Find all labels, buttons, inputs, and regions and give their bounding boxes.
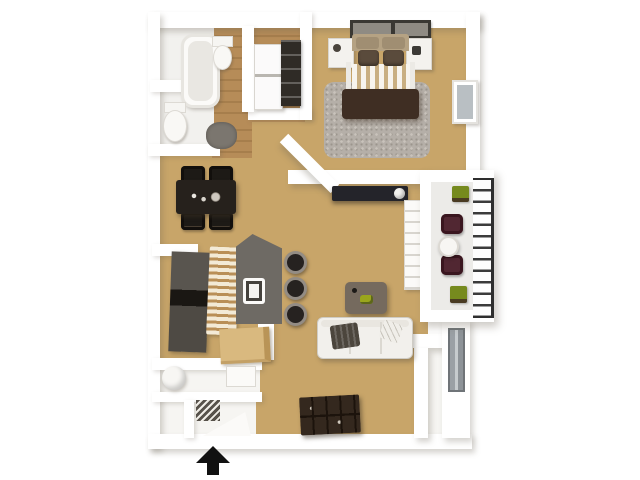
bar-stool [284, 277, 307, 300]
bar-stool [284, 251, 307, 274]
dining-chair [181, 212, 205, 230]
patio-slider-door [448, 328, 465, 392]
bed-pillow-left [358, 50, 379, 66]
bed-blanket [342, 89, 419, 119]
console-lamp [394, 188, 405, 199]
closet-shelving [281, 40, 301, 106]
table-setting [182, 186, 230, 208]
balcony-table [438, 236, 459, 257]
balcony-chair [441, 255, 463, 275]
wall-segment-step-vertical [414, 348, 428, 438]
sofa-throw [329, 322, 360, 350]
wall-segment-bath-bottom [148, 144, 220, 156]
slatted-cabinet [206, 246, 240, 335]
kitchen-sink [243, 278, 265, 304]
wall-segment-closet-right [300, 12, 312, 120]
nightstand-decor-right [412, 46, 421, 55]
wall-segment-left [148, 12, 160, 448]
washer-dryer-seam [255, 74, 282, 77]
dining-chair [209, 212, 233, 230]
headboard-cushion-right [382, 37, 405, 49]
entry-shelf [196, 400, 220, 421]
balcony-chair [441, 214, 463, 234]
water-heater [162, 366, 186, 390]
media-cabinet [299, 394, 361, 435]
pedestal-sink [163, 110, 187, 142]
bathtub-basin [188, 41, 213, 101]
washer-dryer-stack [254, 44, 283, 110]
coffee-table-tray [360, 295, 373, 304]
entry-arrow-icon [196, 446, 230, 463]
balcony-planter [452, 186, 469, 202]
bedroom-window [452, 80, 478, 124]
entry-arrow-shaft [207, 462, 219, 475]
balcony-railing [473, 178, 494, 318]
bath-rug [206, 122, 237, 149]
headboard-cushion-left [356, 37, 379, 49]
balcony-planter [450, 286, 467, 303]
window-glass [457, 85, 473, 119]
floor-plan [0, 0, 640, 480]
wall-segment-closet-left [242, 26, 254, 112]
coffee-table-decor [352, 288, 357, 293]
utility-shelf [226, 366, 256, 387]
wall-segment-entry-divider [184, 400, 194, 438]
wood-base-cabinet [219, 327, 271, 365]
bed-sheets [352, 64, 410, 91]
bed-pillow-right [383, 50, 404, 66]
nightstand-lamp-left [333, 44, 341, 52]
bar-stool [284, 303, 307, 326]
toilet [213, 45, 232, 70]
dining-table [176, 180, 236, 214]
refrigerator [168, 251, 209, 352]
